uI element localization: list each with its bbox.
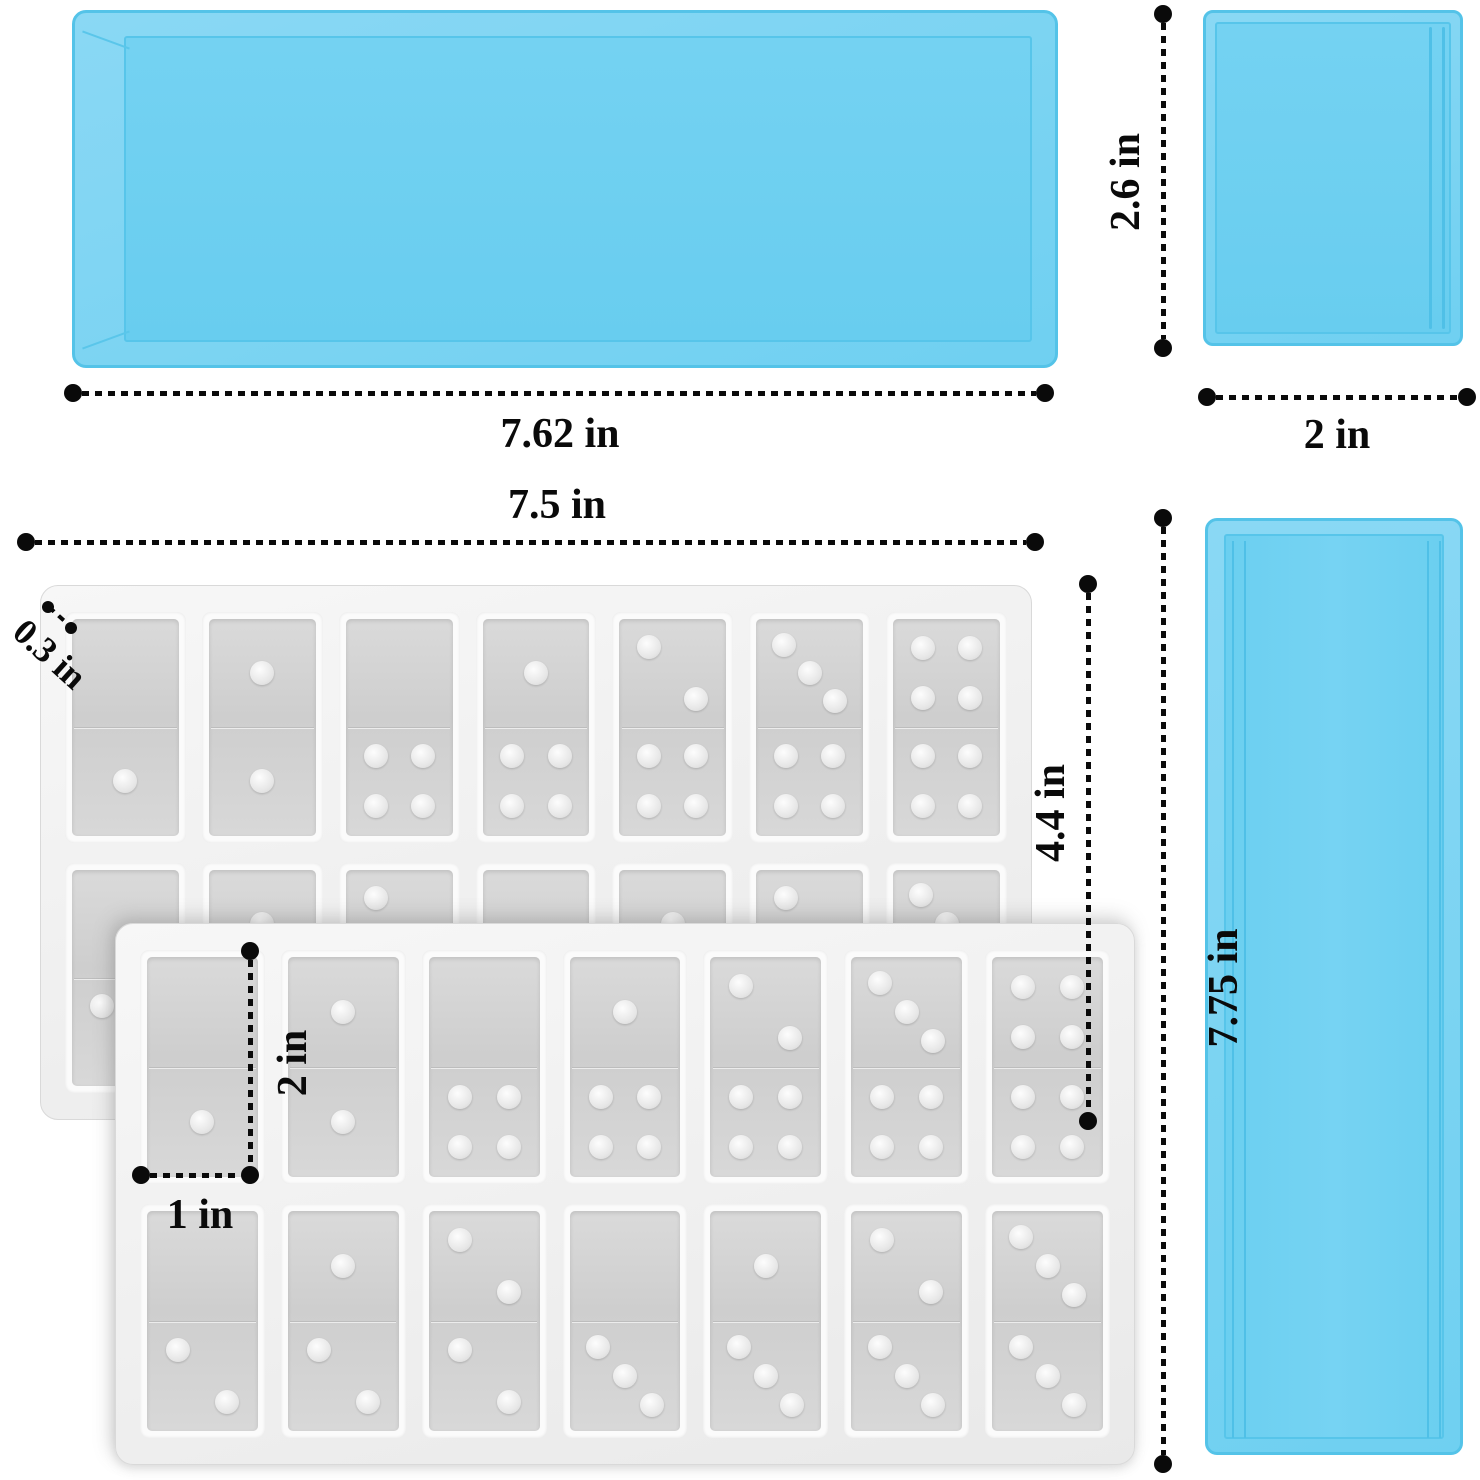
domino-cavity-floor <box>346 619 453 836</box>
domino-pip <box>921 1393 945 1417</box>
domino-half <box>851 957 962 1067</box>
domino-half <box>851 1321 962 1431</box>
domino-half <box>288 1211 399 1321</box>
domino-midline <box>431 1321 537 1322</box>
domino-pip <box>774 794 798 818</box>
domino-pip <box>113 769 137 793</box>
domino-half <box>710 957 821 1067</box>
domino-pip <box>1009 1225 1033 1249</box>
domino-pip <box>448 1135 472 1159</box>
domino-cavity-floor <box>209 619 316 836</box>
domino-pip <box>868 971 892 995</box>
domino-cavity-floor <box>72 619 179 836</box>
dimension-dot <box>132 1166 150 1184</box>
dimension-label-cavity-height: 2 in <box>272 983 314 1143</box>
domino-pip <box>774 886 798 910</box>
domino-half <box>992 1211 1103 1321</box>
domino-pip <box>823 689 847 713</box>
long-tray-floor <box>1224 534 1444 1439</box>
domino-pip <box>958 686 982 710</box>
domino-half <box>710 1321 821 1431</box>
dimension-line-small-tray-width <box>1216 395 1458 400</box>
domino-pip <box>958 636 982 660</box>
domino-cavity <box>140 1204 265 1438</box>
domino-pip <box>821 794 845 818</box>
dimension-dot <box>1154 509 1172 527</box>
dimension-dot <box>1154 5 1172 23</box>
domino-pip <box>1036 1254 1060 1278</box>
dimension-line-mold-width <box>35 540 1026 545</box>
domino-pip <box>548 794 572 818</box>
domino-half <box>619 727 726 835</box>
dimension-dot <box>1458 388 1476 406</box>
long-tray-ridge <box>1439 541 1441 1438</box>
domino-pip <box>727 1335 751 1359</box>
domino-pip <box>909 883 933 907</box>
domino-cavity <box>886 612 1007 843</box>
dimension-dot <box>1154 1455 1172 1473</box>
domino-midline <box>149 1067 255 1068</box>
domino-pip <box>895 1364 919 1388</box>
domino-midline <box>348 727 451 728</box>
domino-pip <box>870 1228 894 1252</box>
domino-pip <box>637 635 661 659</box>
dimension-dot <box>65 622 77 634</box>
dimension-dot <box>241 942 259 960</box>
domino-half <box>429 957 540 1067</box>
domino-cavity-floor <box>147 1211 258 1431</box>
dimension-dot <box>64 384 82 402</box>
domino-pip <box>448 1228 472 1252</box>
domino-pip <box>911 744 935 768</box>
domino-pip <box>821 744 845 768</box>
domino-cavity-floor <box>483 619 590 836</box>
domino-midline <box>149 1321 255 1322</box>
domino-half <box>851 1067 962 1177</box>
domino-pip <box>911 794 935 818</box>
domino-pip <box>958 744 982 768</box>
dimension-line-cavity-height <box>248 960 253 1166</box>
domino-pip <box>780 1393 804 1417</box>
small-tray-floor <box>1215 22 1451 334</box>
domino-cavity <box>140 950 265 1184</box>
domino-midline <box>853 1321 959 1322</box>
dimension-dot <box>1079 575 1097 593</box>
domino-pip <box>250 769 274 793</box>
domino-half <box>756 727 863 835</box>
domino-cavity <box>422 950 547 1184</box>
domino-pip <box>778 1135 802 1159</box>
domino-pip <box>497 1135 521 1159</box>
domino-half <box>346 619 453 727</box>
domino-pip <box>1062 1393 1086 1417</box>
domino-cavity-floor <box>288 1211 399 1431</box>
dimension-label-large-tray-width: 7.62 in <box>410 413 710 455</box>
domino-pip <box>870 1085 894 1109</box>
page-canvas: { "colors": { "tray_blue": "#7cd4f2", "t… <box>0 0 1480 1480</box>
domino-pip <box>500 744 524 768</box>
domino-half <box>429 1321 540 1431</box>
dimension-label-cavity-width: 1 in <box>120 1194 280 1236</box>
domino-cavity <box>281 1204 406 1438</box>
dimension-line-cavity-width <box>150 1173 241 1178</box>
domino-half <box>619 619 726 727</box>
domino-pip <box>868 1335 892 1359</box>
domino-pip <box>729 1135 753 1159</box>
small-tray-slot <box>1442 27 1445 329</box>
large-tray-floor <box>124 36 1032 342</box>
domino-cavity <box>563 950 688 1184</box>
domino-cavity-floor <box>429 957 540 1177</box>
domino-pip <box>640 1393 664 1417</box>
domino-pip <box>497 1280 521 1304</box>
dimension-dot <box>1026 533 1044 551</box>
domino-pip <box>589 1135 613 1159</box>
domino-midline <box>713 1067 819 1068</box>
dimension-dot <box>42 601 54 613</box>
domino-cavity-floor <box>570 1211 681 1431</box>
domino-pip <box>524 661 548 685</box>
domino-pip <box>798 661 822 685</box>
domino-pip <box>1060 1025 1084 1049</box>
domino-midline <box>290 1321 396 1322</box>
domino-midline <box>74 727 177 728</box>
bevel-line <box>82 31 130 50</box>
small-tray-mold <box>1203 10 1463 346</box>
dimension-dot <box>1079 1112 1097 1130</box>
domino-cavity-floor <box>851 1211 962 1431</box>
domino-cavity <box>202 612 323 843</box>
domino-pip <box>589 1085 613 1109</box>
domino-half <box>346 727 453 835</box>
bevel-line <box>82 331 130 350</box>
long-tray-ridge <box>1427 541 1429 1438</box>
domino-half <box>710 1211 821 1321</box>
domino-cavity-floor <box>710 957 821 1177</box>
domino-cavity <box>985 1204 1110 1438</box>
domino-pip <box>1011 1025 1035 1049</box>
domino-cavity <box>844 1204 969 1438</box>
domino-pip <box>911 636 935 660</box>
dimension-label-small-tray-width: 2 in <box>1237 414 1437 456</box>
domino-half <box>893 619 1000 727</box>
dimension-line-mold-height <box>1086 593 1091 1112</box>
domino-pip <box>497 1390 521 1414</box>
domino-pip <box>919 1135 943 1159</box>
domino-pip <box>778 1026 802 1050</box>
domino-cavity <box>749 612 870 843</box>
domino-cavity <box>844 950 969 1184</box>
domino-half <box>570 1067 681 1177</box>
domino-pip <box>331 1000 355 1024</box>
domino-midline <box>994 1321 1100 1322</box>
domino-pip <box>250 661 274 685</box>
domino-pip <box>586 1335 610 1359</box>
domino-pip <box>497 1085 521 1109</box>
domino-cavity <box>339 612 460 843</box>
domino-half <box>147 1321 258 1431</box>
domino-midline <box>211 727 314 728</box>
domino-pip <box>307 1338 331 1362</box>
dimension-dot <box>1154 339 1172 357</box>
domino-half <box>756 619 863 727</box>
dimension-line-small-tray-height <box>1161 23 1166 339</box>
domino-pip <box>637 794 661 818</box>
domino-pip <box>895 1000 919 1024</box>
domino-pip <box>637 744 661 768</box>
dimension-label-small-tray-height: 2.6 in <box>1105 82 1147 282</box>
domino-pip <box>684 687 708 711</box>
domino-pip <box>166 1338 190 1362</box>
domino-pip <box>1009 1335 1033 1359</box>
domino-pip <box>356 1390 380 1414</box>
domino-pip <box>364 794 388 818</box>
domino-cavity-floor <box>429 1211 540 1431</box>
domino-cavity-floor <box>570 957 681 1177</box>
domino-cavity <box>563 1204 688 1438</box>
domino-pip <box>1062 1283 1086 1307</box>
domino-cavity <box>985 950 1110 1184</box>
domino-pip <box>1011 1085 1035 1109</box>
domino-cavity-floor <box>619 619 726 836</box>
domino-pip <box>772 633 796 657</box>
domino-half <box>209 727 316 835</box>
domino-pip <box>919 1085 943 1109</box>
domino-pip <box>870 1135 894 1159</box>
domino-pip <box>774 744 798 768</box>
domino-cavity-floor <box>851 957 962 1177</box>
domino-pip <box>754 1364 778 1388</box>
domino-pip <box>684 744 708 768</box>
dimension-dot <box>1036 384 1054 402</box>
domino-cavity <box>476 612 597 843</box>
domino-pip <box>958 794 982 818</box>
domino-cavity-floor <box>710 1211 821 1431</box>
domino-pip <box>364 886 388 910</box>
domino-half <box>429 1067 540 1177</box>
domino-midline <box>758 727 861 728</box>
domino-cavity-floor <box>756 619 863 836</box>
domino-pip <box>215 1390 239 1414</box>
domino-half <box>147 957 258 1067</box>
domino-pip <box>919 1280 943 1304</box>
dimension-label-long-tray-height: 7.75 in <box>1203 868 1245 1108</box>
dimension-dot <box>241 1166 259 1184</box>
domino-pip <box>548 744 572 768</box>
domino-midline <box>572 1067 678 1068</box>
domino-midline <box>895 727 998 728</box>
dimension-dot <box>17 533 35 551</box>
domino-pip <box>1060 1135 1084 1159</box>
domino-half <box>288 1321 399 1431</box>
domino-pip <box>778 1085 802 1109</box>
domino-cavity <box>422 1204 547 1438</box>
domino-pip <box>921 1029 945 1053</box>
domino-pip <box>90 994 114 1018</box>
domino-pip <box>1011 1135 1035 1159</box>
domino-half <box>483 727 590 835</box>
domino-pip <box>637 1085 661 1109</box>
domino-pip <box>1036 1364 1060 1388</box>
domino-half <box>209 619 316 727</box>
domino-half <box>851 1211 962 1321</box>
domino-half <box>429 1211 540 1321</box>
domino-half <box>992 1321 1103 1431</box>
domino-pip <box>1060 1085 1084 1109</box>
domino-pip <box>364 744 388 768</box>
domino-pip <box>331 1110 355 1134</box>
domino-cavity <box>703 950 828 1184</box>
dimension-dot <box>1198 388 1216 406</box>
domino-pip <box>500 794 524 818</box>
domino-pip <box>190 1110 214 1134</box>
dimension-line-large-tray-width <box>82 391 1036 396</box>
domino-pip <box>613 1364 637 1388</box>
domino-pip <box>1060 975 1084 999</box>
domino-pip <box>448 1338 472 1362</box>
domino-midline <box>713 1321 819 1322</box>
domino-pip <box>411 794 435 818</box>
domino-cavity <box>612 612 733 843</box>
domino-half <box>483 619 590 727</box>
domino-pip <box>911 686 935 710</box>
domino-cavity-floor <box>893 619 1000 836</box>
dimension-label-mold-height: 4.4 in <box>1030 713 1072 913</box>
domino-half <box>147 1067 258 1177</box>
domino-cavity <box>65 612 186 843</box>
domino-midline <box>853 1067 959 1068</box>
domino-pip <box>1011 975 1035 999</box>
dimension-label-mold-width: 7.5 in <box>432 484 682 526</box>
domino-pip <box>684 794 708 818</box>
domino-pip <box>411 744 435 768</box>
domino-midline <box>994 1067 1100 1068</box>
domino-pip <box>448 1085 472 1109</box>
large-tray-mold <box>72 10 1058 368</box>
domino-half <box>570 1211 681 1321</box>
domino-cavity <box>703 1204 828 1438</box>
domino-pip <box>754 1254 778 1278</box>
domino-half <box>72 727 179 835</box>
domino-pip <box>331 1254 355 1278</box>
domino-pip <box>613 1000 637 1024</box>
domino-half <box>570 957 681 1067</box>
domino-midline <box>431 1067 537 1068</box>
domino-half <box>710 1067 821 1177</box>
dimension-line-long-tray-height <box>1161 527 1166 1455</box>
domino-midline <box>622 727 725 728</box>
domino-pip <box>729 974 753 998</box>
small-tray-slot <box>1429 27 1432 329</box>
domino-half <box>893 727 1000 835</box>
domino-midline <box>572 1321 678 1322</box>
domino-cavity-floor <box>992 1211 1103 1431</box>
domino-half <box>570 1321 681 1431</box>
domino-midline <box>485 727 588 728</box>
domino-cavity-floor <box>147 957 258 1177</box>
domino-pip <box>637 1135 661 1159</box>
domino-pip <box>729 1085 753 1109</box>
